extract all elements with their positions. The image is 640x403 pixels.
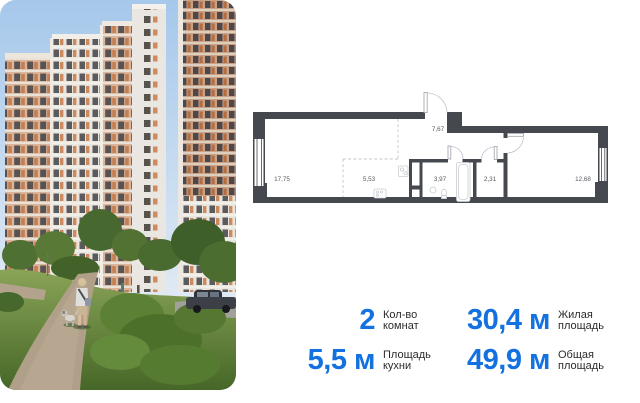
room-area-label-wardrobe: 2,31 bbox=[484, 176, 497, 183]
stat-kitchen-area-value: 5,5 м bbox=[240, 344, 375, 377]
kitchen-appliance bbox=[374, 189, 386, 198]
entrance-door-swing bbox=[427, 93, 447, 113]
building-photo-image bbox=[0, 0, 236, 390]
stat-room-count-value: 2 bbox=[240, 304, 375, 337]
toilet bbox=[441, 189, 446, 195]
floor-plan-drawing: 17,75 5,53 7,67 3,97 2,31 12,68 bbox=[240, 80, 640, 215]
room-area-label-living-room: 17,75 bbox=[274, 176, 290, 183]
kitchen-zone-boundary bbox=[343, 119, 398, 197]
stat-total-area: 49,9 м Общая площадь bbox=[440, 341, 638, 379]
bedroom-door-leaf bbox=[508, 134, 524, 137]
stat-kitchen-area: 5,5 м Площадь кухни bbox=[240, 341, 432, 379]
stat-living-area: 30,4 м Жилая площадь bbox=[440, 301, 638, 339]
room-area-label-bedroom: 12,68 bbox=[575, 176, 591, 183]
wardrobe-door-swing bbox=[482, 147, 495, 160]
bedroom-door-swing bbox=[507, 136, 523, 153]
bathroom-door-leaf bbox=[448, 146, 451, 159]
stove bbox=[399, 166, 409, 177]
room-area-label-bathroom: 3,97 bbox=[434, 176, 447, 183]
light-pole bbox=[47, 252, 48, 276]
stat-total-area-label: Общая площадь bbox=[558, 349, 604, 371]
apartment-stats: 2 Кол-во комнат 30,4 м Жилая площадь 5,5… bbox=[240, 301, 638, 379]
room-area-label-kitchen: 5,53 bbox=[363, 176, 376, 183]
room-area-label-hallway: 7,67 bbox=[432, 126, 445, 133]
stat-total-area-value: 49,9 м bbox=[440, 344, 550, 377]
entrance-door-leaf bbox=[424, 93, 427, 113]
stat-room-count-label: Кол-во комнат bbox=[383, 309, 419, 331]
room-area-labels: 17,75 5,53 7,67 3,97 2,31 12,68 bbox=[274, 126, 591, 183]
floor-plan: 17,75 5,53 7,67 3,97 2,31 12,68 bbox=[240, 80, 640, 215]
sink bbox=[430, 187, 436, 193]
stat-living-area-label: Жилая площадь bbox=[558, 309, 604, 331]
stat-kitchen-area-label: Площадь кухни bbox=[383, 349, 431, 371]
stat-living-area-value: 30,4 м bbox=[440, 304, 550, 337]
wardrobe-door-leaf bbox=[494, 147, 497, 160]
building-photo[interactable] bbox=[0, 0, 236, 390]
vent-shaft bbox=[409, 186, 423, 190]
bathroom-door-swing bbox=[451, 147, 463, 160]
stat-room-count: 2 Кол-во комнат bbox=[240, 301, 432, 339]
